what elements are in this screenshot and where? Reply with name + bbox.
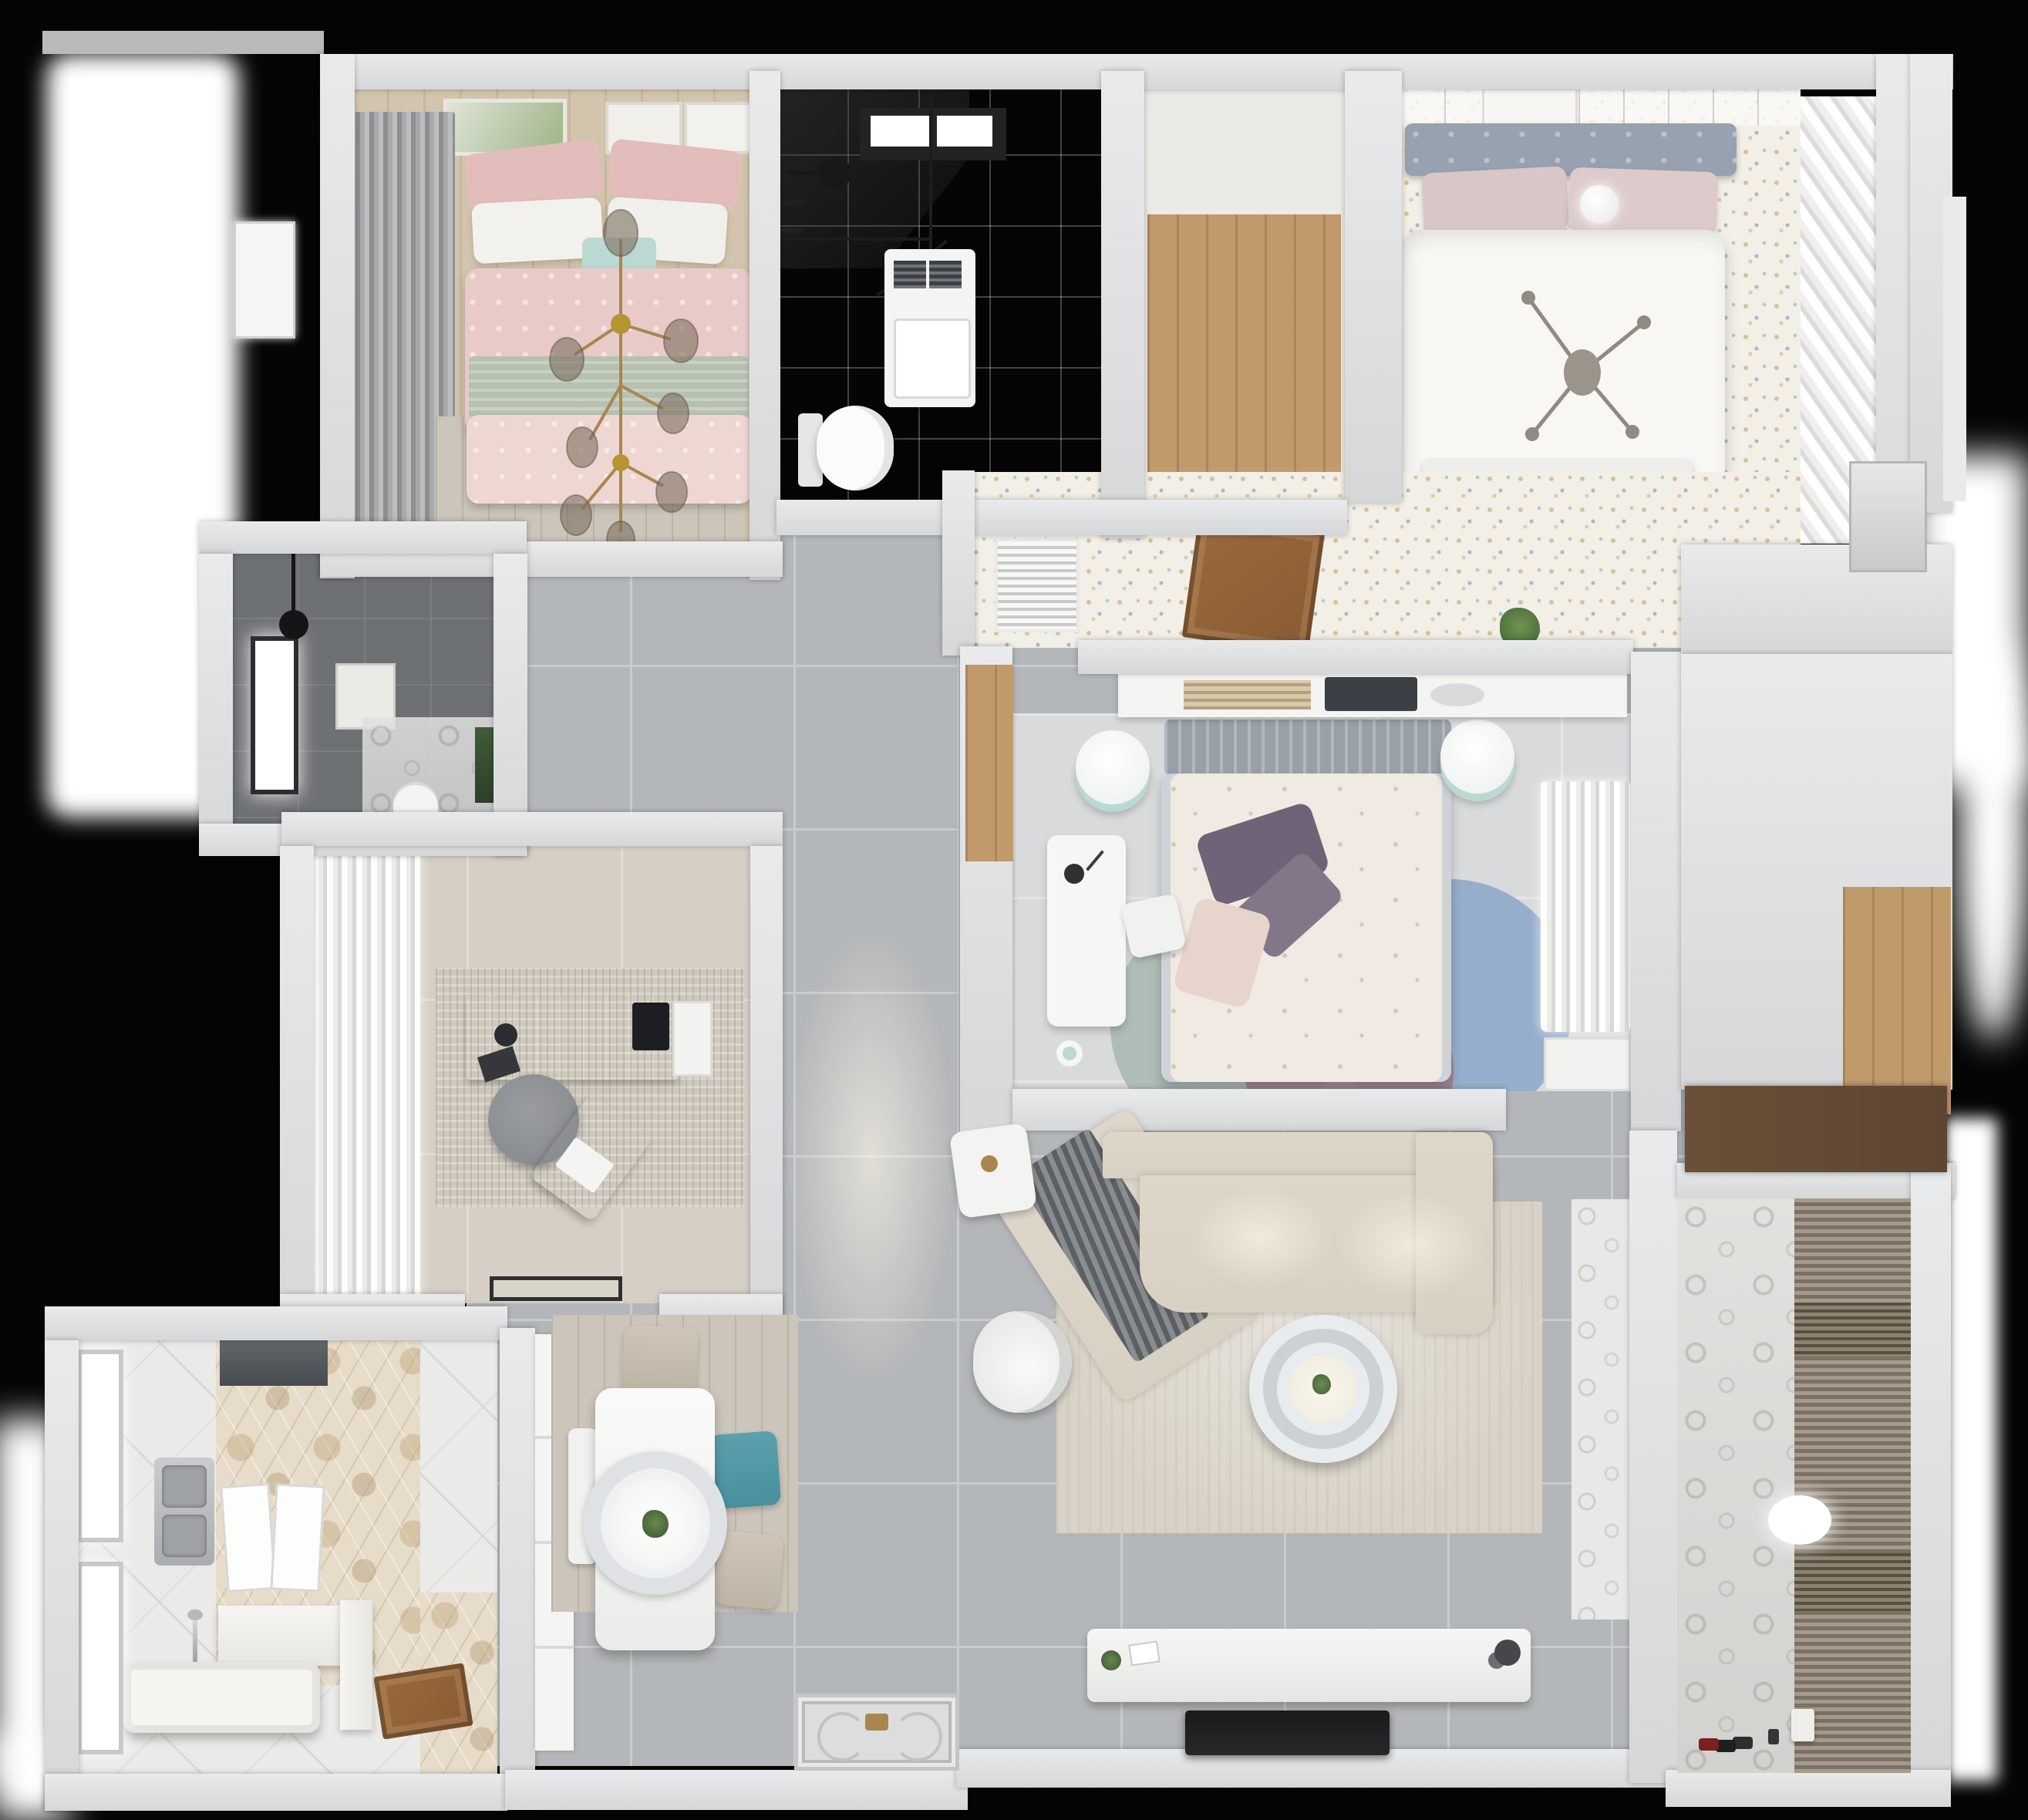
branch-chandelier: [505, 208, 744, 548]
tub-filler-knob: [187, 1609, 203, 1620]
hall-wood-threshold: [965, 665, 1013, 861]
mat-emblem: [865, 1714, 888, 1731]
wall-balcony-bottom: [1666, 1770, 1951, 1807]
floorplan-canvas: [0, 0, 2028, 1820]
shelf-tablet: [1325, 677, 1417, 711]
tub-filler: [193, 1617, 197, 1662]
white-exterior-door: [234, 221, 295, 339]
room-bathroom-top: [777, 83, 1103, 515]
balcony-roller-blinds: [1794, 1198, 1911, 1773]
sheer-curtains-right: [1541, 781, 1631, 1032]
wall-bedroom-pink-left: [320, 54, 355, 578]
shower-glass-horizontal: [777, 238, 931, 241]
window-left-1: [77, 1350, 123, 1542]
toy-figure: [1768, 1729, 1779, 1744]
living-east-wall-pattern: [1572, 1199, 1629, 1619]
sink-basin-bottom: [162, 1515, 207, 1557]
desk-accessory-dark: [494, 1023, 517, 1046]
shower-head: [819, 157, 851, 189]
headboard-gray: [1164, 720, 1451, 775]
console-decor-right: [1494, 1640, 1521, 1666]
hood-cabinet: [220, 1338, 328, 1386]
dining-chair-top: [622, 1325, 699, 1392]
shower-valve-2: [781, 228, 803, 233]
wall-bedcenter-bottom: [1012, 1089, 1506, 1131]
ceiling-panel-band: [1401, 83, 1801, 126]
armchair-white: [973, 1311, 1072, 1413]
freestanding-bathtub: [123, 1662, 320, 1733]
room-study: [312, 844, 752, 1303]
headboard-shelf: [1118, 671, 1627, 717]
wall-study-right: [750, 846, 783, 1328]
wall-bottom-left: [45, 1774, 507, 1811]
vanity-counter-h: [218, 1606, 349, 1666]
coffee-table-sprig: [1312, 1374, 1331, 1394]
mirror-panel-1: [220, 1483, 276, 1592]
window-left-2: [77, 1562, 123, 1754]
room-utility-closet: [1143, 83, 1346, 514]
shower-ceiling-pipe: [291, 551, 295, 613]
room-bedroom-center: [1010, 713, 1631, 1091]
exterior-light-right-bottom: [1943, 1118, 1997, 1781]
gray-door-panel: [1849, 461, 1927, 572]
toy-car: [1699, 1738, 1719, 1751]
study-doormat: [490, 1276, 622, 1301]
shower-valve-1: [781, 201, 803, 205]
wall-top-right-lightband: [1943, 197, 1966, 501]
entrance-mat: [794, 1694, 959, 1771]
bright-window: [251, 636, 298, 794]
exterior-light-right-mid: [1959, 640, 2028, 1041]
room-bathroom-dark: [231, 551, 494, 829]
wall-darkbath-right: [494, 554, 527, 856]
skylight-pane-left: [871, 116, 931, 147]
shelf-books: [1184, 680, 1311, 709]
console-frames: [1128, 1640, 1161, 1666]
desk-whiteboard: [672, 1001, 712, 1077]
wall-darkbath-left: [199, 554, 233, 856]
desk-chair: [1120, 893, 1186, 959]
toilet-bowl: [817, 406, 894, 490]
tufted-headboard: [1405, 123, 1737, 176]
double-sink: [154, 1458, 214, 1566]
mint-cup: [1056, 1040, 1083, 1067]
wall-corridor-stub: [942, 470, 975, 656]
washer-door-panel: [894, 318, 971, 399]
side-table-decor: [981, 1155, 998, 1172]
sphere-lamp: [1580, 185, 1619, 224]
sofa-light-spot-1: [1187, 1188, 1334, 1288]
blinds-rail-lower: [1794, 1553, 1911, 1611]
mirror-panel-2: [270, 1483, 325, 1592]
black-shower-head: [279, 610, 308, 639]
wall-tv: [1185, 1710, 1390, 1755]
desk-monitor: [632, 1003, 669, 1050]
laptop-on-chair: [555, 1137, 615, 1194]
table-plant: [642, 1510, 669, 1538]
closet-wood-floor: [1147, 214, 1341, 514]
room-balcony: [1677, 1198, 1911, 1773]
shower-glass-vertical: [929, 83, 932, 262]
study-sheer-curtains: [312, 848, 420, 1299]
console-plant: [1101, 1650, 1121, 1670]
sofa-light-spot-2: [1334, 1191, 1488, 1299]
pillow-rose-left: [1421, 166, 1569, 237]
shelf-tray: [1430, 683, 1484, 706]
white-can: [1791, 1709, 1814, 1741]
wall-closet-bedroom-divider: [1345, 71, 1402, 503]
wall-darkbath-top: [199, 521, 527, 554]
green-plant-strip: [475, 727, 494, 803]
hall-light-pool: [787, 925, 956, 1388]
wall-bottom-main: [505, 1770, 968, 1810]
balcony-ceiling-light: [1768, 1495, 1831, 1545]
wall-study-top: [281, 812, 783, 846]
exterior-slab-top-left: [42, 31, 324, 54]
wall-bedcenter-top: [1078, 640, 1633, 674]
blinds-rail-upper: [1794, 1303, 1911, 1357]
shower-arm: [787, 170, 822, 175]
dark-brown-cabinet: [1685, 1086, 1947, 1172]
desk-lamp: [1064, 864, 1084, 884]
wall-bath-closet-bottom: [777, 500, 1347, 535]
tv-console: [1087, 1629, 1531, 1702]
sink-basin-top: [162, 1465, 207, 1508]
wall-balcony-right: [1911, 1163, 1951, 1780]
washer-control-right: [929, 261, 962, 288]
balcony-pattern-wall: [1677, 1198, 1794, 1773]
wall-living-east: [1629, 1131, 1677, 1783]
ac-vent: [995, 538, 1080, 632]
room-bathroom-tub: [77, 1338, 497, 1778]
wall-kitchenbath-top: [45, 1306, 507, 1340]
mat-arc-right: [893, 1712, 942, 1761]
wall-study-left: [280, 846, 314, 1328]
skylight-pane-right: [937, 116, 992, 147]
wall-kitchenbath-corridor: [500, 1328, 535, 1810]
white-wardrobe: [1544, 1037, 1631, 1091]
mat-arc-left: [817, 1712, 867, 1761]
wall-pink-bath-divider: [750, 71, 780, 580]
white-desk: [1047, 835, 1126, 1026]
wall-kitchenbath-left: [45, 1340, 79, 1811]
washer-control-left: [894, 261, 926, 288]
cross-ceiling-light: [1478, 268, 1686, 477]
room-bedroom-pink: [351, 85, 756, 548]
right-corridor-wood-niche: [1843, 887, 1951, 1114]
wall-bath-closet-divider: [1101, 71, 1144, 538]
vanity-counter-v: [340, 1600, 372, 1730]
stool-teal-left: [1076, 730, 1150, 804]
wall-bedcenter-right: [1631, 652, 1681, 1131]
stool-teal-right: [1440, 720, 1514, 794]
